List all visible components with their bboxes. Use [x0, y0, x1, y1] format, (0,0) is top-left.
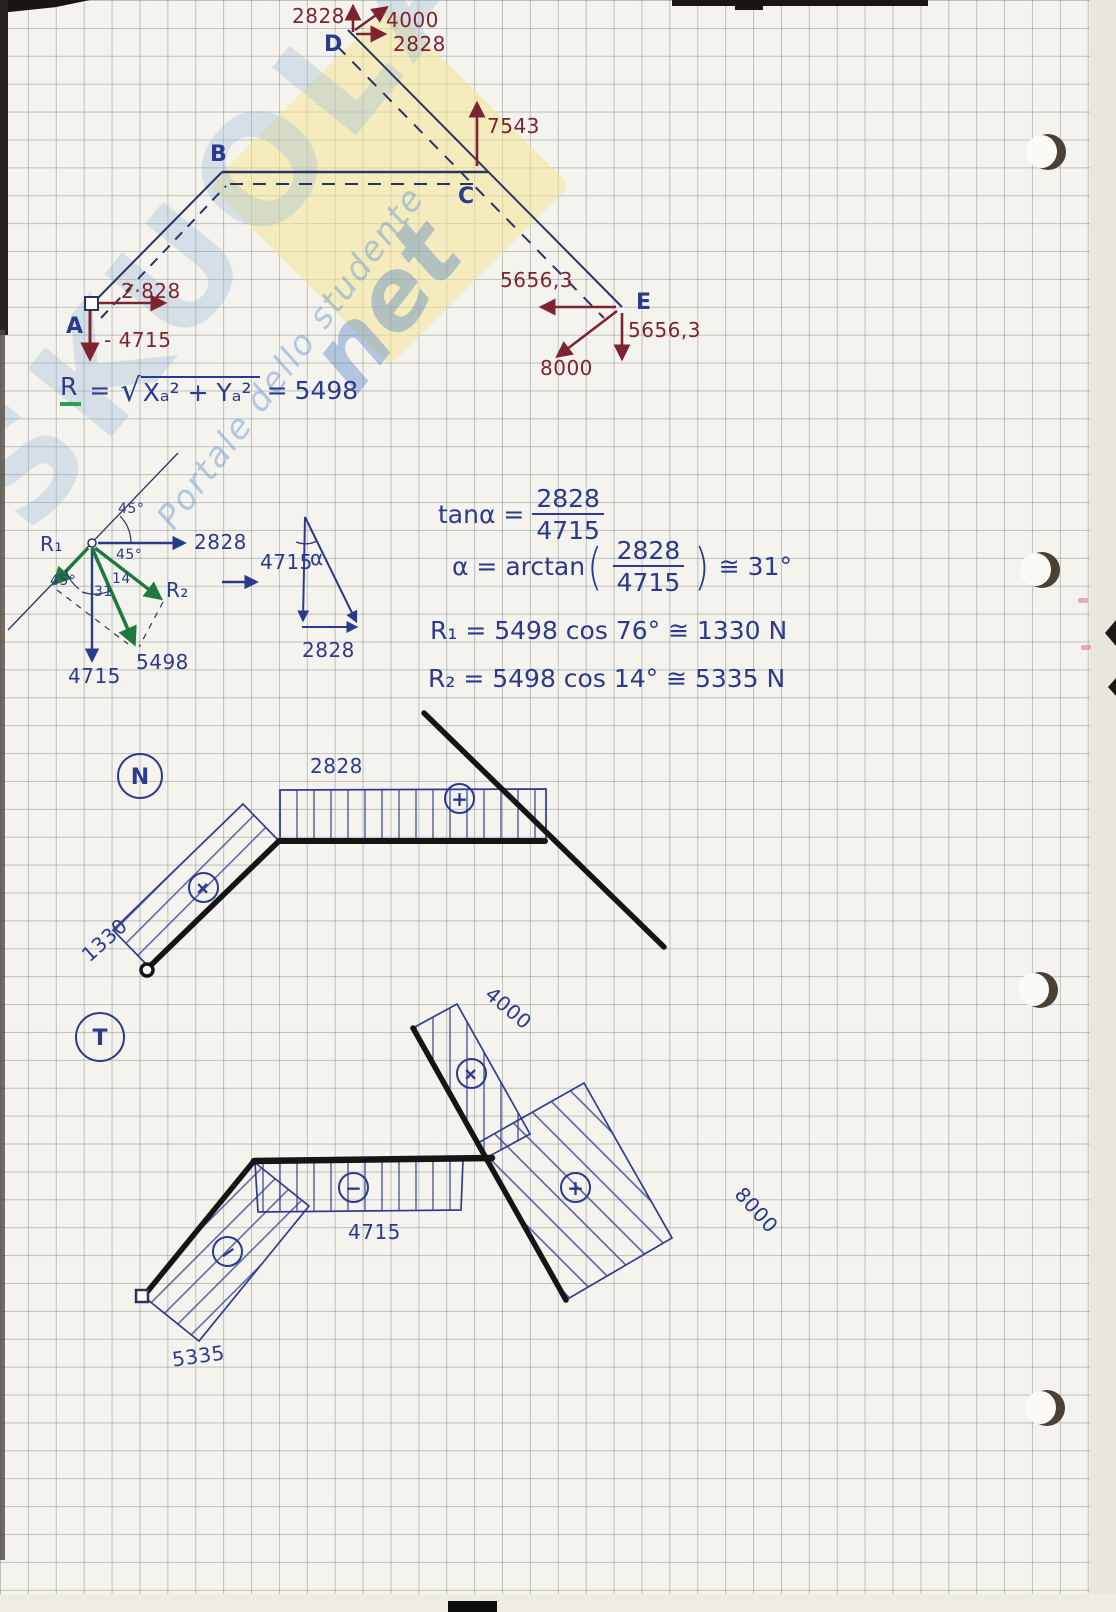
- frame-force-arrows: [90, 7, 622, 358]
- radicand: Xₐ² + Yₐ²: [141, 376, 260, 405]
- binder-hole-2: [1024, 552, 1060, 588]
- tan-fraction: 2828 4715: [532, 486, 604, 543]
- n-diagram: [113, 713, 664, 976]
- triangle-horizontal-value: 2828: [302, 640, 355, 660]
- scan-right-notch-2: [1108, 678, 1116, 696]
- angle-31: 31: [94, 585, 113, 599]
- arctan-formula: α = arctan ( 2828 4715 ) ≅ 31°: [452, 538, 799, 595]
- n-diagram-title: N: [127, 765, 153, 790]
- force-c-up-label: 7543: [487, 116, 540, 136]
- r2-vector-label: R₂: [166, 580, 189, 600]
- binder-hole-1: [1030, 134, 1066, 170]
- resultant-lhs: R: [60, 374, 81, 406]
- triangle-vertical-value: 4715: [260, 552, 313, 572]
- handwritten-strokes: [0, 0, 1116, 1612]
- force-a-down-label: - 4715: [104, 330, 171, 350]
- angle-14: 14: [112, 572, 131, 586]
- n-top-band-sign: +: [444, 783, 475, 814]
- ink-bleed-mark-1: [1078, 598, 1088, 603]
- paren-left: (: [587, 542, 603, 592]
- binder-hole-4: [1029, 1390, 1065, 1426]
- force-d-up-label: 2828: [292, 6, 345, 26]
- resultant-formula: R = √ Xₐ² + Yₐ² = 5498: [60, 374, 358, 406]
- force-e-down-label: 5656,3: [628, 320, 701, 340]
- radical-sign: √: [120, 374, 140, 406]
- binder-hole-3: [1022, 972, 1058, 1008]
- n-top-band-value: 2828: [310, 756, 363, 776]
- triangle-alpha-label: α: [310, 548, 324, 568]
- r2-result-line: R₂ = 5498 cos 14° ≅ 5335 N: [428, 666, 785, 691]
- scan-left-shadow-top: [0, 0, 8, 335]
- force-e-left-label: 5656,3: [500, 270, 573, 290]
- resultant-value: 5498: [295, 378, 359, 403]
- t-band-4715-sign: −: [338, 1172, 369, 1203]
- scanned-notebook-page: SKUOLA net Portale dello studente: [0, 0, 1116, 1612]
- ink-bleed-mark-2: [1081, 645, 1091, 650]
- node-d-label: D: [324, 34, 343, 56]
- force-d-diag-label: 4000: [386, 10, 439, 30]
- scan-bottom-mark: [448, 1601, 497, 1612]
- angle-45-mid: 45°: [116, 548, 142, 562]
- t-band-4715-value: 4715: [348, 1222, 401, 1242]
- t-diagram-title: T: [87, 1026, 113, 1051]
- node-e-label: E: [636, 292, 652, 314]
- decomp-y-value: 4715: [68, 666, 121, 686]
- node-a-label: A: [66, 316, 84, 338]
- t-diagram: [76, 1004, 672, 1341]
- decomp-x-value: 2828: [194, 532, 247, 552]
- angle-45-top: 45°: [118, 502, 144, 516]
- node-c-label: C: [458, 186, 475, 208]
- arctan-fraction: 2828 4715: [613, 538, 685, 595]
- t-band-8000-sign: +: [560, 1172, 591, 1203]
- paren-right: ): [694, 542, 710, 592]
- force-a-right-label: 2·828: [121, 281, 181, 301]
- r1-result-line: R₁ = 5498 cos 76° ≅ 1330 N: [430, 618, 787, 643]
- scan-top-shadow: [672, 0, 928, 6]
- node-b-label: B: [210, 144, 227, 166]
- scan-left-shadow: [0, 330, 5, 1560]
- scan-right-notch-1: [1105, 620, 1116, 646]
- tan-formula: tanα = 2828 4715: [438, 486, 612, 543]
- angle-45-left: 45°: [50, 574, 76, 588]
- force-d-right-label: 2828: [393, 34, 446, 54]
- decomp-resultant-value: 5498: [136, 652, 189, 672]
- force-e-diag-label: 8000: [540, 358, 593, 378]
- r1-vector-label: R₁: [40, 534, 63, 554]
- scan-top-shadow-nub: [735, 0, 763, 10]
